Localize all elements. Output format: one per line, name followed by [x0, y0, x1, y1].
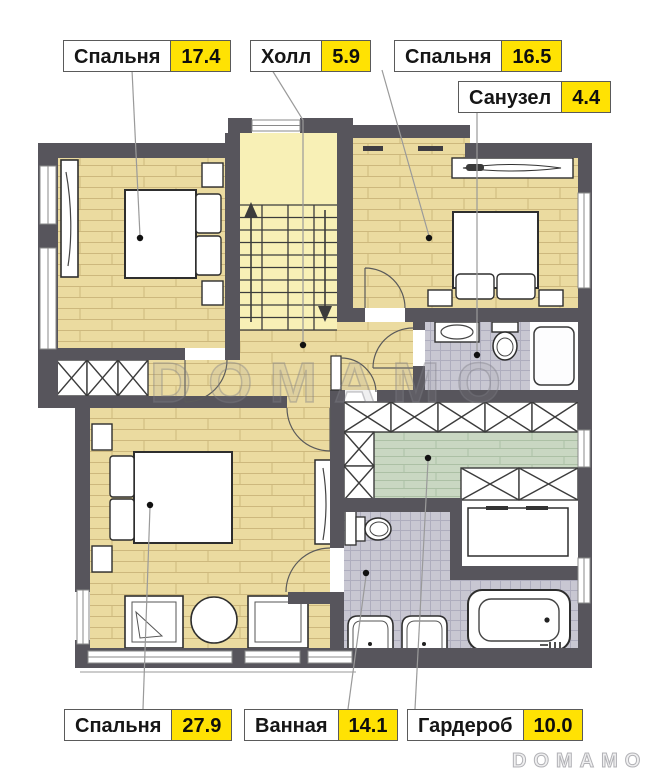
floor-plan-page: DOMAMO DOMAMO Спальня 17.4 Холл 5.9 Спал… — [0, 0, 664, 782]
room-label-bedroom-top-left: Спальня 17.4 — [63, 40, 231, 72]
toilet-symbol — [356, 517, 365, 541]
nightstand-symbol — [202, 281, 223, 305]
wardrobe-bottom-row — [461, 468, 578, 500]
nightstand-symbol — [92, 424, 112, 450]
cabinet-symbol — [468, 508, 568, 556]
room-name: Санузел — [458, 81, 562, 113]
room-area-badge: 14.1 — [339, 709, 399, 741]
bench-symbol — [539, 290, 563, 306]
hall-closet — [56, 360, 148, 396]
toilet-symbol — [492, 322, 518, 332]
round-table-symbol — [191, 597, 237, 643]
room-label-wc: Санузел 4.4 — [458, 81, 611, 113]
room-area-badge: 5.9 — [322, 40, 371, 72]
pillow-symbol — [196, 194, 221, 233]
pillow-symbol — [497, 274, 535, 299]
watermark-center: DOMAMO — [150, 350, 518, 416]
pillow-symbol — [456, 274, 494, 299]
pillow-symbol — [110, 456, 134, 497]
room-label-bedroom-bottom: Спальня 27.9 — [64, 709, 232, 741]
room-name: Спальня — [63, 40, 171, 72]
room-name: Холл — [250, 40, 322, 72]
bench-symbol — [428, 290, 452, 306]
nightstand-symbol — [92, 546, 112, 572]
pillow-symbol — [110, 499, 134, 540]
sliding-door-mark — [418, 146, 443, 151]
room-name: Ванная — [244, 709, 339, 741]
watermark-corner: DOMAMO — [512, 750, 647, 773]
room-name: Гардероб — [407, 709, 524, 741]
room-area-badge: 10.0 — [524, 709, 584, 741]
room-label-bedroom-top-right: Спальня 16.5 — [394, 40, 562, 72]
sliding-door-mark — [363, 146, 383, 151]
bed-symbol — [125, 190, 196, 278]
nightstand-symbol — [202, 163, 223, 187]
room-label-bathroom: Ванная 14.1 — [244, 709, 398, 741]
room-label-wardrobe: Гардероб 10.0 — [407, 709, 583, 741]
room-area-badge: 27.9 — [172, 709, 232, 741]
room-area-badge: 16.5 — [502, 40, 562, 72]
room-name: Спальня — [394, 40, 502, 72]
clothes-rail-symbol — [466, 164, 484, 171]
pillow-symbol — [196, 236, 221, 275]
room-label-hall: Холл 5.9 — [250, 40, 371, 72]
wardrobe-left-column — [344, 432, 374, 500]
room-area-badge: 4.4 — [562, 81, 611, 113]
room-area-badge: 17.4 — [171, 40, 231, 72]
armchair-symbol — [125, 596, 183, 648]
room-name: Спальня — [64, 709, 172, 741]
